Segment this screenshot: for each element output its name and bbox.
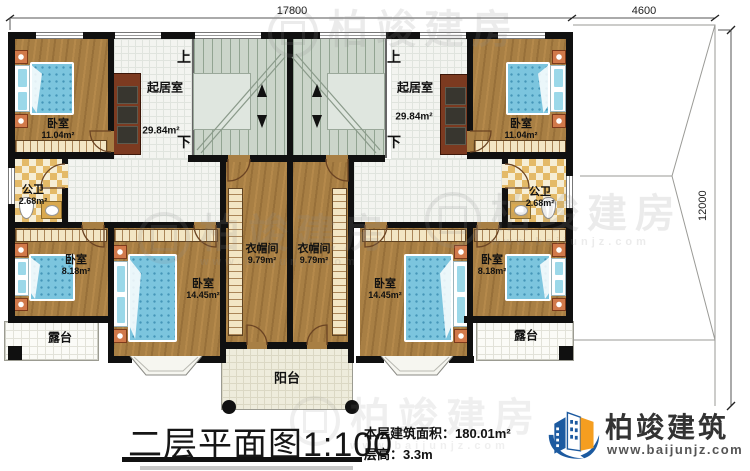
window — [320, 32, 386, 39]
bed — [404, 245, 468, 345]
room-label-bedroom-mr: 卧室14.45m² — [368, 278, 402, 300]
dimension-height-right: 12000 — [697, 180, 713, 232]
wall — [220, 162, 226, 363]
wardrobe — [114, 229, 218, 242]
bed — [113, 245, 177, 345]
brand-logo-icon — [545, 406, 601, 462]
room-label-bedroom-br: 卧室8.18m² — [478, 254, 507, 276]
nightstand — [552, 114, 566, 128]
floor-plan-canvas: 柏竣建房 柏竣建房 www.baijunjz.com 柏竣建房 www.baij… — [0, 0, 750, 471]
nightstand — [14, 243, 28, 257]
door-opening — [326, 155, 348, 162]
door-opening — [502, 164, 508, 188]
terrace-corner-block — [8, 346, 22, 360]
stair-down-label: 下 — [177, 132, 191, 152]
hall-right-floor — [354, 159, 502, 222]
room-label-closet-l: 衣帽间9.79m² — [246, 243, 279, 265]
brand-name: 柏竣建筑 — [605, 406, 729, 446]
door-opening — [194, 222, 216, 228]
wall — [464, 316, 573, 323]
hall-left-floor — [68, 159, 222, 222]
nightstand — [14, 50, 28, 64]
floor-height-stat: 层高：3.3m — [364, 444, 433, 463]
bed — [504, 243, 566, 311]
door-opening — [477, 222, 499, 228]
window — [36, 32, 83, 39]
title-underline — [122, 457, 362, 462]
sofa — [440, 74, 468, 155]
dimension-width-main: 17800 — [262, 5, 322, 17]
floor-area-value: 180.01m² — [455, 426, 511, 441]
wardrobe — [228, 188, 243, 336]
door-opening — [82, 222, 104, 228]
nightstand — [113, 329, 127, 343]
door-opening — [365, 222, 387, 228]
wardrobe — [474, 229, 566, 242]
stair-landing — [193, 73, 251, 130]
room-label-bath-r: 公卫2.68m² — [526, 186, 555, 208]
door-opening — [247, 342, 267, 349]
wall — [467, 152, 573, 159]
door-opening — [467, 131, 473, 152]
room-area-living-l: 29.84m² — [142, 126, 179, 137]
wall — [220, 342, 354, 349]
terrace-corner-block — [559, 346, 573, 360]
door-opening — [228, 155, 250, 162]
nightstand — [454, 329, 468, 343]
wall — [348, 162, 354, 363]
brand-url: www.baijunjz.com — [607, 442, 743, 457]
room-label-terrace-r: 露台 — [514, 327, 538, 344]
wall — [8, 316, 111, 323]
wall — [108, 228, 114, 323]
wall — [467, 228, 473, 323]
floor-area-stat: 本层建筑面积：180.01m² — [364, 423, 511, 442]
roof-outline — [573, 25, 715, 406]
window — [420, 32, 466, 39]
wall — [108, 356, 132, 363]
title-underline-shadow — [140, 466, 353, 470]
door-opening — [307, 342, 327, 349]
dimension-width-right: 4600 — [616, 5, 672, 17]
floor-height-value: 3.3m — [403, 447, 433, 462]
nightstand — [14, 114, 28, 128]
window — [115, 32, 161, 39]
stair-down-label: 下 — [387, 132, 401, 152]
bed — [14, 50, 75, 128]
room-area-living-r: 29.84m² — [395, 112, 432, 123]
bed-headboard — [14, 65, 30, 112]
wardrobe — [332, 188, 347, 336]
room-label-balcony: 阳台 — [274, 368, 300, 387]
stair-landing — [327, 73, 385, 130]
bed-headboard — [113, 261, 128, 327]
nightstand — [113, 245, 127, 259]
window — [195, 32, 261, 39]
room-label-bath-l: 公卫2.68m² — [19, 184, 48, 206]
window — [8, 168, 15, 204]
bed-headboard — [551, 258, 566, 296]
window — [566, 176, 573, 208]
bed — [505, 50, 566, 128]
room-label-bedroom-tl: 卧室11.04m² — [41, 118, 74, 140]
room-label-bedroom-tr: 卧室11.04m² — [504, 118, 537, 140]
wall — [449, 356, 474, 363]
sofa — [113, 73, 141, 155]
wardrobe — [362, 229, 466, 242]
wall — [196, 356, 226, 363]
nightstand — [552, 298, 566, 311]
bed-headboard — [550, 65, 566, 112]
room-label-closet-r: 衣帽间9.79m² — [298, 243, 331, 265]
room-label-terrace-l: 露台 — [48, 329, 72, 346]
window — [498, 32, 545, 39]
room-label-bedroom-bl: 卧室8.18m² — [62, 254, 91, 276]
brand-logo: 柏竣建筑 www.baijunjz.com — [545, 404, 745, 466]
nightstand — [552, 50, 566, 64]
nightstand — [454, 245, 468, 259]
room-label-living-r: 起居室 — [397, 79, 433, 96]
door-opening — [62, 164, 68, 188]
room-label-living-l: 起居室 — [147, 79, 183, 96]
stair-up-label: 上 — [177, 47, 191, 67]
wall — [356, 356, 384, 363]
nightstand — [14, 298, 28, 311]
room-label-bedroom-ml: 卧室14.45m² — [186, 278, 220, 300]
wardrobe — [15, 229, 107, 242]
wall — [287, 32, 293, 349]
stair-up-label: 上 — [387, 47, 401, 67]
wall — [8, 152, 114, 159]
bed-headboard — [14, 258, 29, 296]
door-opening — [108, 131, 114, 152]
nightstand — [552, 243, 566, 257]
